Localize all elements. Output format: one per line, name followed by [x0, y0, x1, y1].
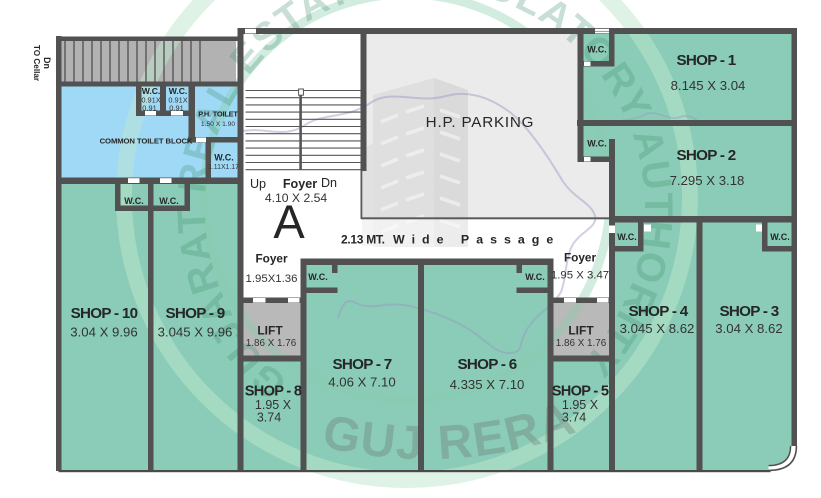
svg-text:Wide Passage: Wide Passage: [393, 233, 560, 247]
svg-text:1.11X1.17: 1.11X1.17: [208, 164, 239, 171]
svg-text:W.C.: W.C.: [587, 45, 607, 55]
svg-text:0.91: 0.91: [169, 104, 183, 113]
svg-text:SHOP - 1: SHOP - 1: [676, 52, 736, 69]
svg-text:1.86 X 1.76: 1.86 X 1.76: [246, 338, 297, 349]
svg-text:W.C.: W.C.: [124, 196, 144, 206]
svg-text:3.04 X 8.62: 3.04 X 8.62: [715, 321, 782, 336]
svg-text:4.06 X 7.10: 4.06 X 7.10: [328, 375, 395, 390]
svg-text:COMMON TOILET BLOCK: COMMON TOILET BLOCK: [100, 137, 193, 146]
svg-text:SHOP - 7: SHOP - 7: [332, 356, 391, 373]
svg-text:W.C.: W.C.: [587, 139, 607, 149]
svg-text:SHOP - 2: SHOP - 2: [676, 147, 735, 164]
svg-text:W.C.: W.C.: [525, 272, 545, 282]
svg-text:3.74: 3.74: [562, 411, 586, 425]
svg-text:1.95 X 3.47: 1.95 X 3.47: [551, 270, 609, 282]
svg-text:SHOP - 6: SHOP - 6: [457, 356, 516, 373]
svg-text:3.045 X 8.62: 3.045 X 8.62: [620, 321, 695, 336]
svg-text:2.13 MT.: 2.13 MT.: [341, 233, 385, 247]
svg-text:W.C.: W.C.: [308, 272, 328, 282]
svg-text:Dn: Dn: [321, 176, 337, 190]
svg-text:Up: Up: [250, 177, 266, 191]
svg-text:W.C.: W.C.: [159, 196, 179, 206]
svg-text:A: A: [273, 195, 305, 248]
svg-text:SHOP - 3: SHOP - 3: [719, 303, 778, 320]
svg-text:1.86 X 1.76: 1.86 X 1.76: [556, 338, 607, 349]
svg-text:W.C.: W.C.: [214, 153, 234, 163]
svg-text:W.C.: W.C.: [617, 232, 637, 242]
svg-text:W.C.: W.C.: [142, 86, 161, 96]
svg-text:Foyer: Foyer: [564, 251, 597, 265]
svg-text:0.91: 0.91: [142, 104, 156, 113]
svg-text:TO Cellar: TO Cellar: [32, 45, 41, 82]
svg-text:4.335 X 7.10: 4.335 X 7.10: [450, 377, 525, 392]
svg-text:Foyer: Foyer: [283, 177, 317, 191]
svg-text:8.145 X 3.04: 8.145 X 3.04: [671, 78, 746, 93]
svg-text:SHOP - 4: SHOP - 4: [628, 303, 688, 320]
svg-text:LIFT: LIFT: [257, 324, 283, 338]
svg-text:LIFT: LIFT: [568, 324, 594, 338]
svg-text:W.C.: W.C.: [770, 232, 790, 242]
svg-text:1.95X1.36: 1.95X1.36: [246, 273, 298, 285]
svg-text:Dn: Dn: [42, 57, 52, 69]
svg-text:1.50 X 1.90: 1.50 X 1.90: [201, 121, 235, 128]
svg-text:3.045 X 9.96: 3.045 X 9.96: [158, 325, 233, 340]
svg-text:H.P. PARKING: H.P. PARKING: [426, 114, 535, 131]
svg-text:3.74: 3.74: [257, 411, 281, 425]
svg-text:P.H. TOILET: P.H. TOILET: [198, 110, 238, 119]
svg-text:W.C.: W.C.: [169, 86, 188, 96]
svg-text:SHOP - 9: SHOP - 9: [165, 305, 224, 322]
svg-text:7.295 X 3.18: 7.295 X 3.18: [670, 173, 745, 188]
svg-text:3.04 X 9.96: 3.04 X 9.96: [70, 325, 137, 340]
svg-text:SHOP - 10: SHOP - 10: [71, 305, 138, 322]
svg-text:Foyer: Foyer: [255, 252, 288, 266]
